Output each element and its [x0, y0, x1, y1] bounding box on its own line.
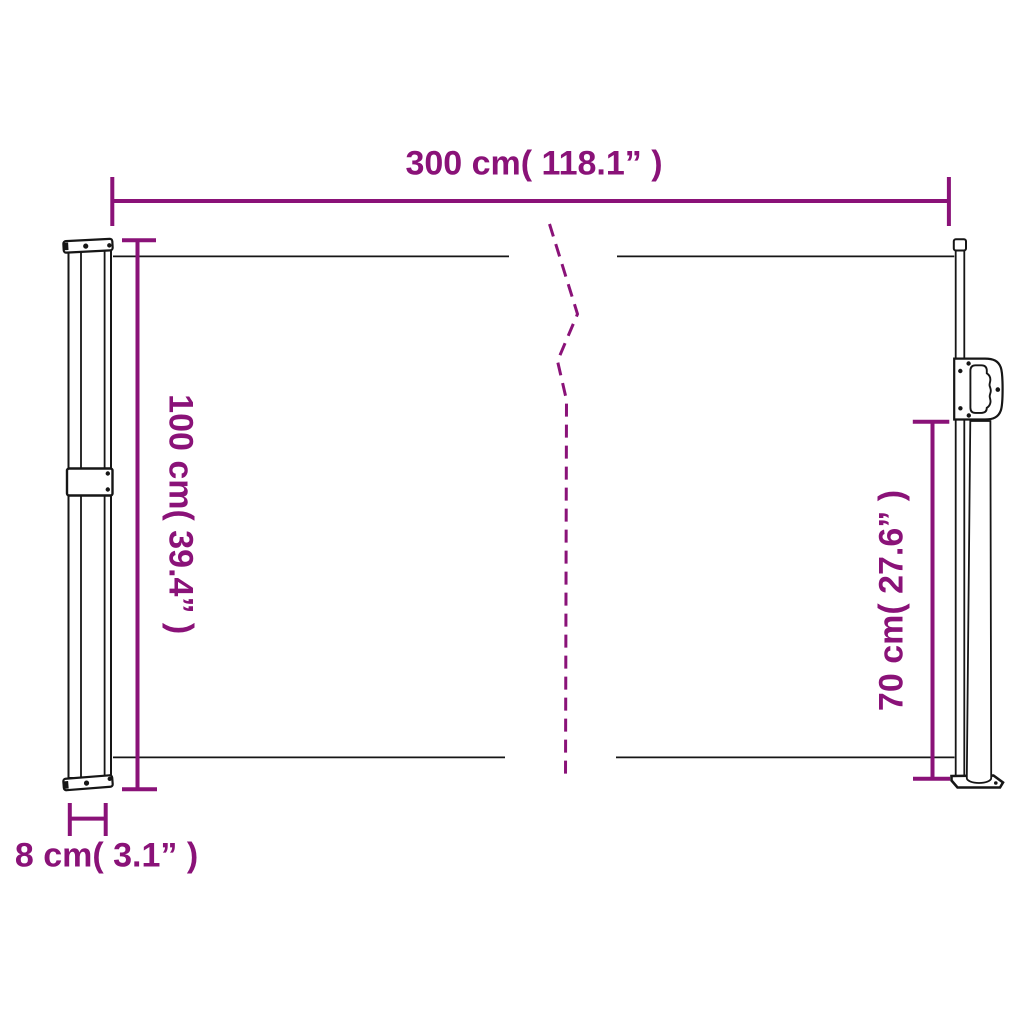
svg-text:100 cm( 39.4” ): 100 cm( 39.4” ) — [161, 394, 199, 634]
svg-text:300 cm( 118.1” ): 300 cm( 118.1” ) — [405, 145, 662, 183]
svg-text:8 cm( 3.1” ): 8 cm( 3.1” ) — [15, 837, 198, 875]
svg-text:70 cm( 27.6” ): 70 cm( 27.6” ) — [872, 490, 910, 711]
